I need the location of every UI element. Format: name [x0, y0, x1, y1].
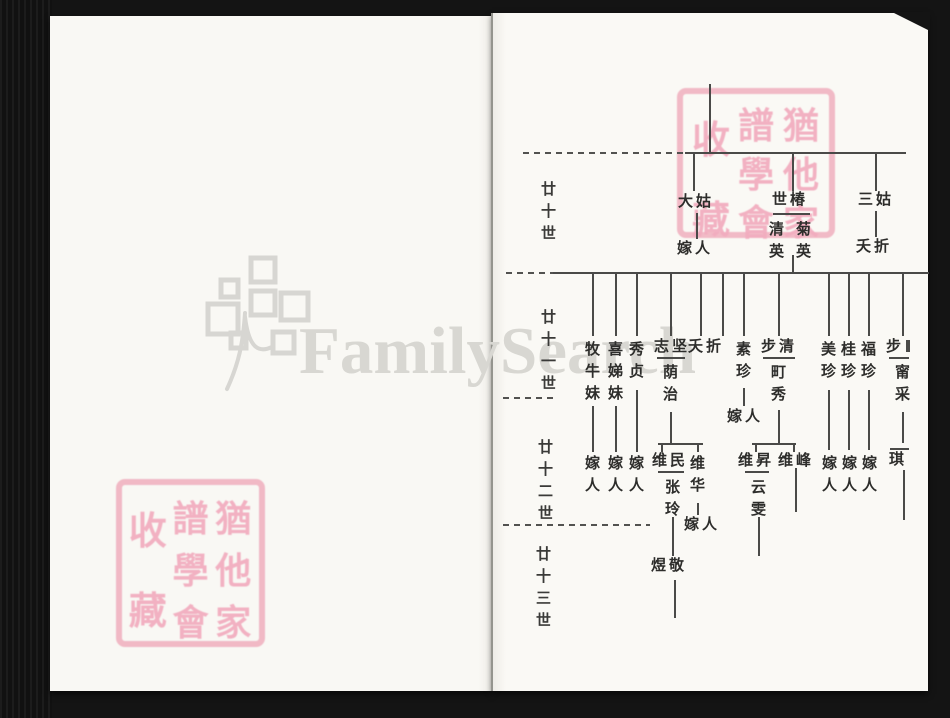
- tree-line-dashed: [506, 272, 553, 274]
- person-name-text: 牧牛妹: [584, 339, 601, 405]
- tree-line-vertical: [709, 84, 711, 152]
- tree-line-horizontal: [685, 152, 906, 154]
- tree-line-vertical: [848, 390, 850, 450]
- tree-line-vertical: [743, 388, 745, 406]
- tree-line-dashed: [503, 524, 650, 526]
- tree-line-dashed: [523, 152, 683, 154]
- tree-line-vertical: [592, 272, 594, 336]
- tree-line-vertical: [903, 470, 905, 520]
- person-name-text: 张玲: [664, 477, 681, 521]
- generation-label: 廿十一世: [540, 307, 557, 395]
- tree-line-horizontal: [658, 443, 703, 445]
- tree-line-vertical: [758, 517, 760, 556]
- tree-line-vertical: [636, 390, 638, 452]
- person-name-text: 嫁人: [861, 453, 878, 497]
- person-name-text: 嫁人: [677, 241, 713, 256]
- person-name-text: 志坚: [654, 339, 690, 354]
- tree-line-vertical: [902, 272, 904, 336]
- tree-line-vertical: [868, 272, 870, 336]
- tree-line-vertical: [778, 410, 780, 443]
- generation-label: 廿十世: [540, 179, 557, 245]
- tree-line-horizontal: [889, 357, 909, 359]
- person-name-text: 世椿: [772, 192, 808, 207]
- tree-line-horizontal: [657, 357, 685, 359]
- person-name-text: 维昇: [738, 453, 774, 468]
- tree-line-horizontal: [773, 213, 810, 215]
- tree-line-vertical: [828, 272, 830, 336]
- tree-line-vertical: [615, 406, 617, 452]
- tree-line-vertical: [636, 272, 638, 336]
- person-name-text: 大姑: [678, 194, 714, 209]
- person-name-text: 步清: [761, 339, 797, 354]
- person-name-text: 町秀: [770, 362, 787, 406]
- person-name-text: 夭折: [688, 339, 724, 354]
- tree-line-vertical: [875, 152, 877, 191]
- person-name-text: 菊英: [795, 219, 812, 263]
- person-name-text: 嫁人: [821, 453, 838, 497]
- tree-line-vertical: [743, 272, 745, 336]
- tree-line-vertical: [670, 412, 672, 443]
- tree-line-vertical: [906, 340, 910, 352]
- person-name-text: 嫁人: [841, 453, 858, 497]
- person-name-text: 嫁人: [584, 453, 601, 497]
- tree-line-vertical: [693, 152, 695, 191]
- person-name-text: 琪: [889, 452, 907, 467]
- person-name-text: 喜娣妹: [607, 339, 624, 405]
- tree-line-vertical: [778, 272, 780, 336]
- person-name-text: 美珍: [820, 339, 837, 383]
- tree-line-vertical: [792, 152, 794, 191]
- tree-line-vertical: [615, 272, 617, 336]
- person-name-text: 煜敬: [651, 558, 687, 573]
- tree-line-horizontal: [745, 471, 769, 473]
- tree-line-horizontal: [763, 357, 795, 359]
- person-name-text: 维华: [689, 453, 706, 497]
- person-name-text: 维峰: [778, 453, 814, 468]
- tree-line-vertical: [696, 213, 698, 239]
- tree-line-dashed: [503, 397, 556, 399]
- person-name-text: 云雯: [750, 477, 767, 521]
- tree-line-vertical: [592, 406, 594, 452]
- person-name-text: 三姑: [858, 192, 894, 207]
- person-name-text: 夭折: [856, 239, 892, 254]
- tree-line-vertical: [795, 468, 797, 512]
- person-name-text: 维民: [652, 453, 688, 468]
- person-name-text: 嫁人: [727, 409, 763, 424]
- tree-line-vertical: [674, 580, 676, 618]
- tree-line-vertical: [848, 272, 850, 336]
- tree-line-horizontal: [553, 272, 929, 274]
- tree-line-vertical: [672, 517, 674, 556]
- tree-line-vertical: [700, 272, 702, 336]
- person-name-text: 清英: [768, 219, 785, 263]
- generation-label: 廿十二世: [537, 437, 554, 525]
- tree-line-horizontal: [658, 471, 684, 473]
- person-name-text: 秀贞: [628, 339, 645, 383]
- person-name-text: 甯采: [894, 362, 911, 406]
- person-name-text: 步: [886, 339, 904, 354]
- person-name-text: 素珍: [735, 339, 752, 383]
- person-name-text: 嫁人: [607, 453, 624, 497]
- tree-line-vertical: [670, 272, 672, 336]
- tree-line-vertical: [902, 412, 904, 443]
- person-name-text: 桂珍: [840, 339, 857, 383]
- tree-line-vertical: [722, 272, 724, 336]
- family-tree-chart: 大姑嫁人世椿清英菊英三姑夭折牧牛妹喜娣妹秀贞志坚荫治夭折素珍嫁人步清町秀美珍桂珍…: [0, 0, 950, 718]
- tree-line-horizontal: [890, 448, 909, 450]
- person-name-text: 嫁人: [684, 517, 720, 532]
- book-scan-photo: FamilySearch 猶他家 譜學會 收藏 猶他家 譜學會 收藏 大姑嫁人世…: [0, 0, 950, 718]
- tree-line-horizontal: [752, 443, 796, 445]
- tree-line-vertical: [828, 390, 830, 450]
- person-name-text: 福珍: [860, 339, 877, 383]
- person-name-text: 荫治: [662, 362, 679, 406]
- tree-line-vertical: [697, 503, 699, 515]
- person-name-text: 嫁人: [628, 453, 645, 497]
- generation-label: 廿十三世: [535, 544, 552, 632]
- tree-line-vertical: [792, 255, 794, 272]
- tree-line-vertical: [875, 211, 877, 237]
- tree-line-vertical: [868, 390, 870, 450]
